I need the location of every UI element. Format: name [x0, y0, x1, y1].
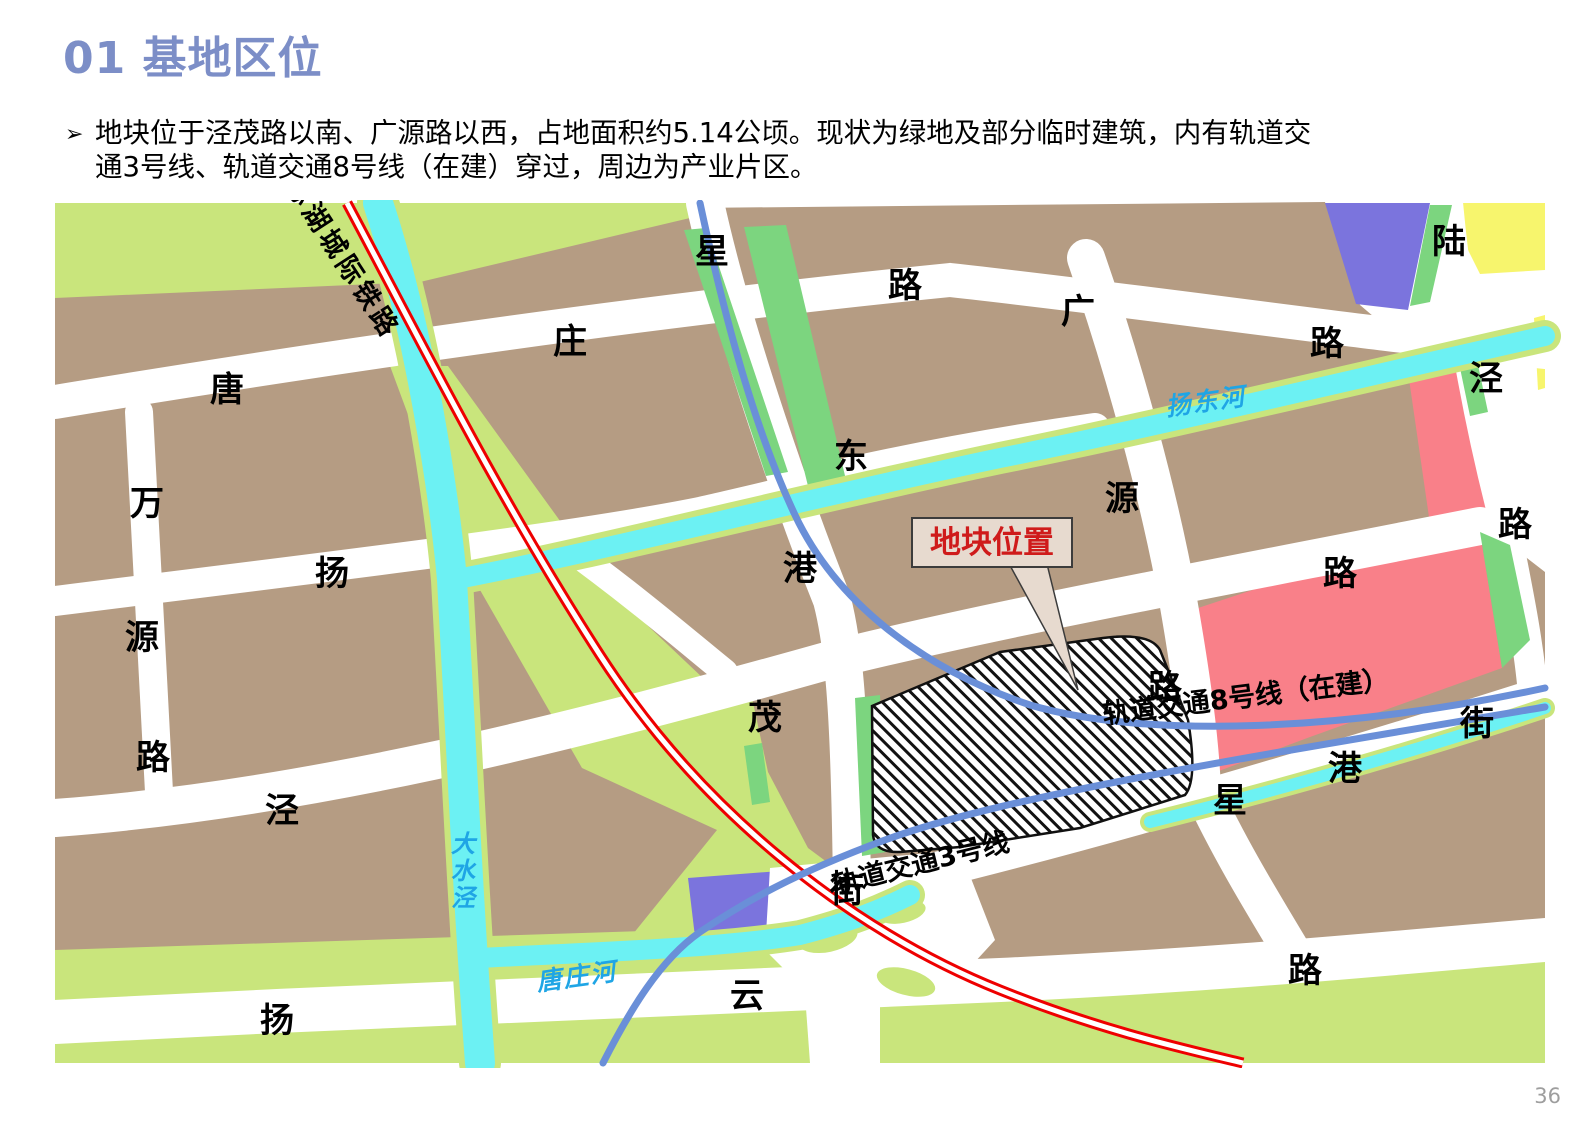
road-label: 路 [1498, 505, 1533, 545]
road-label: 星 [695, 232, 729, 272]
road-label: 路 [1310, 324, 1345, 364]
river-label-dashuijing: 大水泾 [451, 830, 478, 912]
road-label: 路 [136, 738, 171, 778]
yellow-zone-corner [1462, 203, 1545, 274]
road-label: 庄 [553, 322, 587, 362]
site-callout-label: 地块位置 [930, 525, 1054, 561]
road-label: 港 [1328, 749, 1363, 789]
road-label: 东 [834, 437, 868, 477]
road-label: 路 [1288, 951, 1323, 991]
road-label: 广 [1061, 292, 1095, 332]
road-label: 万 [130, 484, 164, 524]
road-label: 陆 [1432, 222, 1466, 262]
bullet-text-line2: 通3号线、轨道交通8号线（在建）穿过，周边为产业片区。 [95, 150, 1505, 184]
road-label: 扬 [315, 554, 349, 594]
road-label: 茂 [748, 698, 782, 738]
road-label: 扬 [260, 1001, 294, 1041]
road-label: 港 [783, 549, 818, 589]
road-label: 街 [1459, 704, 1494, 744]
road-label: 路 [888, 266, 923, 306]
road-label: 路 [1323, 554, 1358, 594]
site-location-map: 地块位置 如通苏湖城际铁路轨道交通8号线（在建）轨道交通3号线扬东河大水泾唐庄河… [0, 200, 1587, 1068]
page-number: 36 [1534, 1084, 1561, 1108]
road-label: 云 [730, 976, 764, 1016]
road-label: 街 [829, 871, 864, 911]
road-label: 泾 [1469, 359, 1503, 399]
road-label: 源 [125, 618, 159, 658]
road-label: 源 [1105, 479, 1139, 519]
road-label: 唐 [210, 370, 244, 410]
bullet-arrow-icon: ➢ [65, 118, 83, 152]
page-title: 01 基地区位 [63, 22, 323, 86]
road-label: 泾 [265, 791, 299, 831]
bullet-text-line1: 地块位于泾茂路以南、广源路以西，占地面积约5.14公顷。现状为绿地及部分临时建筑… [95, 116, 1505, 150]
road-label: 路 [1148, 668, 1183, 708]
road-label: 星 [1213, 781, 1247, 821]
intro-bullet: ➢ 地块位于泾茂路以南、广源路以西，占地面积约5.14公顷。现状为绿地及部分临时… [65, 116, 1505, 184]
